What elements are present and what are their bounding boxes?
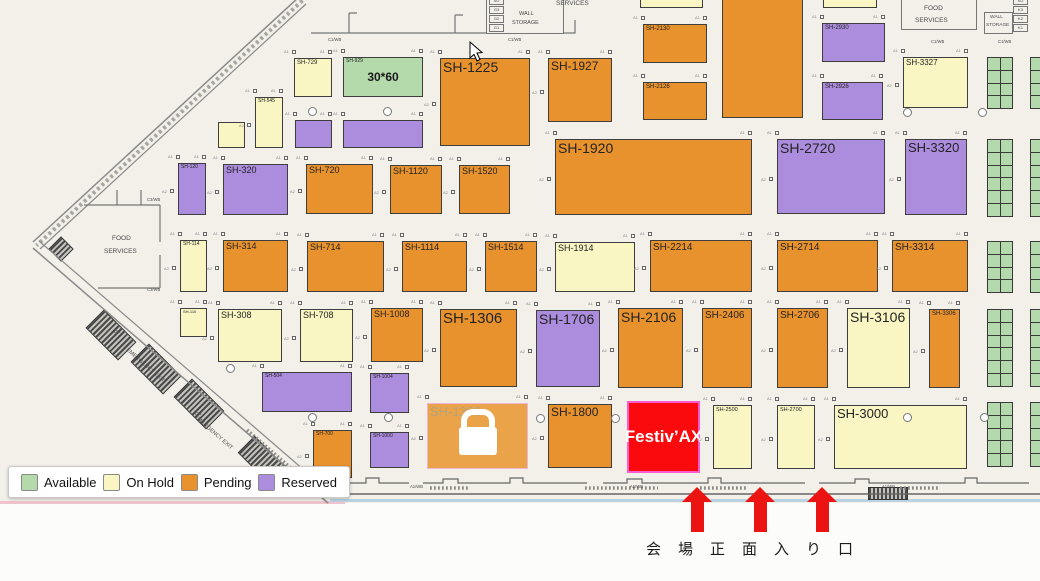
mouse-cursor-icon (0, 0, 1040, 581)
booth-floor-plan: G1G2G3SOK1K2K3SOSERVICESWALLSTORAGEFOODS… (0, 0, 1040, 581)
